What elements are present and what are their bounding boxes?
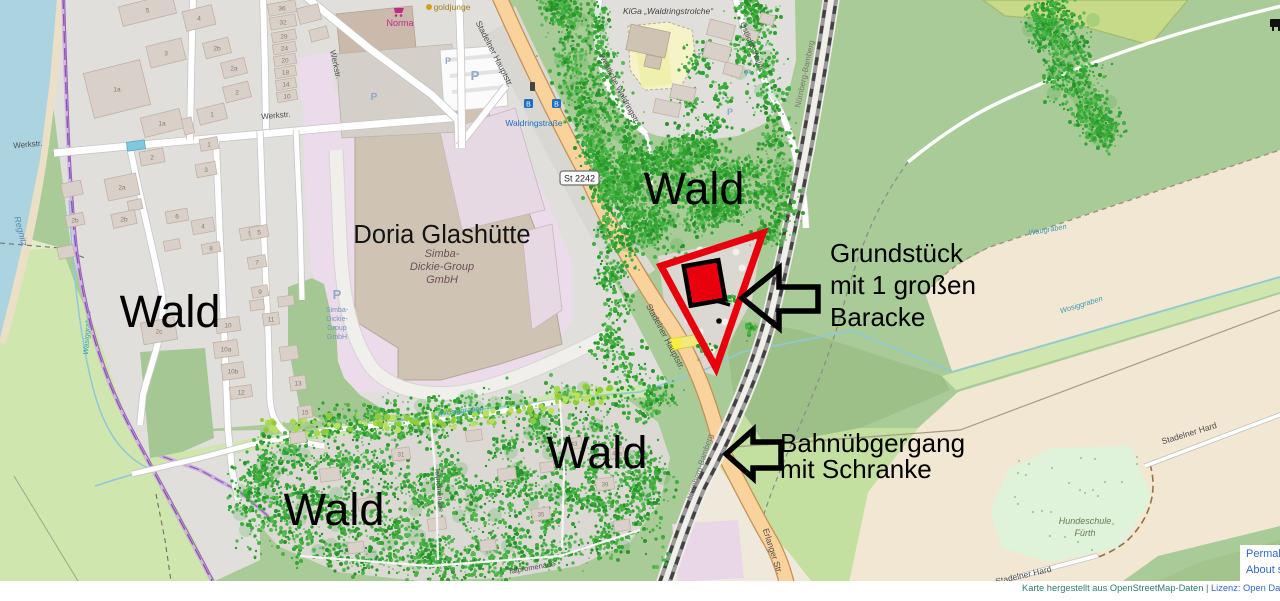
svg-text:24: 24 (281, 46, 289, 53)
svg-text:39: 39 (602, 483, 609, 489)
svg-text:1: 1 (207, 142, 211, 149)
svg-text:18: 18 (282, 70, 290, 77)
svg-text:4: 4 (197, 16, 201, 23)
svg-text:Dickie-: Dickie- (326, 316, 348, 323)
svg-text:15: 15 (301, 410, 309, 417)
svg-text:7: 7 (255, 260, 259, 267)
svg-text:3: 3 (204, 167, 208, 174)
svg-text:Grundstück: Grundstück (830, 238, 964, 268)
svg-text:2a: 2a (118, 185, 126, 192)
svg-text:2b: 2b (120, 217, 128, 224)
svg-text:P: P (745, 68, 751, 78)
svg-text:goldjunge: goldjunge (434, 2, 471, 12)
svg-text:10: 10 (224, 323, 232, 330)
svg-text:P: P (445, 56, 451, 66)
svg-text:5: 5 (257, 230, 261, 237)
svg-text:2b: 2b (71, 218, 79, 225)
svg-text:14: 14 (282, 82, 290, 89)
svg-text:32: 32 (279, 20, 287, 27)
svg-text:P: P (333, 287, 342, 302)
svg-text:11: 11 (268, 317, 275, 324)
svg-text:1: 1 (210, 112, 214, 119)
svg-text:P: P (371, 92, 378, 103)
svg-text:10: 10 (283, 94, 291, 101)
svg-text:2: 2 (235, 90, 239, 97)
svg-text:Wald: Wald (284, 484, 385, 535)
svg-text:Dickie-Group: Dickie-Group (410, 261, 474, 273)
svg-text:6: 6 (175, 214, 179, 221)
svg-text:Wald: Wald (120, 286, 221, 337)
svg-text:P: P (727, 107, 733, 117)
svg-text:Wald: Wald (547, 427, 648, 478)
svg-text:9: 9 (258, 289, 262, 296)
svg-text:5: 5 (146, 8, 150, 15)
svg-text:1a: 1a (158, 121, 166, 128)
svg-text:13: 13 (294, 381, 302, 388)
svg-text:10b: 10b (228, 369, 239, 376)
svg-text:Simba-: Simba- (326, 307, 349, 314)
svg-text:About style: About style (1246, 564, 1280, 576)
svg-text:Waldringstraße: Waldringstraße (505, 118, 563, 128)
svg-text:Doria Glashütte: Doria Glashütte (353, 221, 530, 249)
svg-text:2a: 2a (230, 66, 238, 73)
svg-text:28: 28 (280, 34, 288, 41)
svg-text:31: 31 (398, 453, 405, 459)
svg-text:Group: Group (327, 325, 347, 332)
svg-text:mit 1 großen: mit 1 großen (830, 270, 976, 300)
svg-text:Wald: Wald (644, 163, 745, 214)
svg-text:KiGa „Waldringstrolche“: KiGa „Waldringstrolche“ (623, 6, 714, 16)
svg-text:1a: 1a (113, 87, 121, 94)
svg-text:Fürth: Fürth (1074, 528, 1095, 538)
svg-text:2: 2 (150, 155, 154, 162)
svg-text:12: 12 (237, 390, 245, 397)
svg-text:8: 8 (209, 246, 213, 253)
svg-text:20: 20 (281, 58, 289, 65)
svg-text:Karte hergestellt aus OpenStre: Karte hergestellt aus OpenStreetMap-Date… (1022, 583, 1280, 593)
svg-text:36: 36 (278, 6, 286, 13)
svg-text:B: B (554, 102, 559, 109)
svg-text:P: P (471, 68, 480, 83)
svg-text:B: B (526, 102, 531, 109)
svg-text:2b: 2b (213, 46, 221, 53)
svg-text:Hundeschule: Hundeschule (1059, 516, 1112, 526)
svg-text:GmbH: GmbH (327, 334, 347, 341)
svg-text:Simba-: Simba- (425, 248, 460, 260)
svg-text:35: 35 (538, 513, 545, 519)
svg-text:St 2242: St 2242 (564, 174, 595, 184)
svg-text:10a: 10a (221, 347, 232, 354)
svg-text:mit Schranke: mit Schranke (780, 454, 932, 484)
svg-text:Baracke: Baracke (830, 302, 925, 332)
svg-text:Permalink: Permalink (1246, 548, 1280, 560)
svg-text:Norma: Norma (386, 18, 413, 28)
svg-text:3: 3 (164, 51, 168, 58)
svg-text:GmbH: GmbH (426, 274, 458, 286)
svg-text:4: 4 (201, 224, 205, 231)
